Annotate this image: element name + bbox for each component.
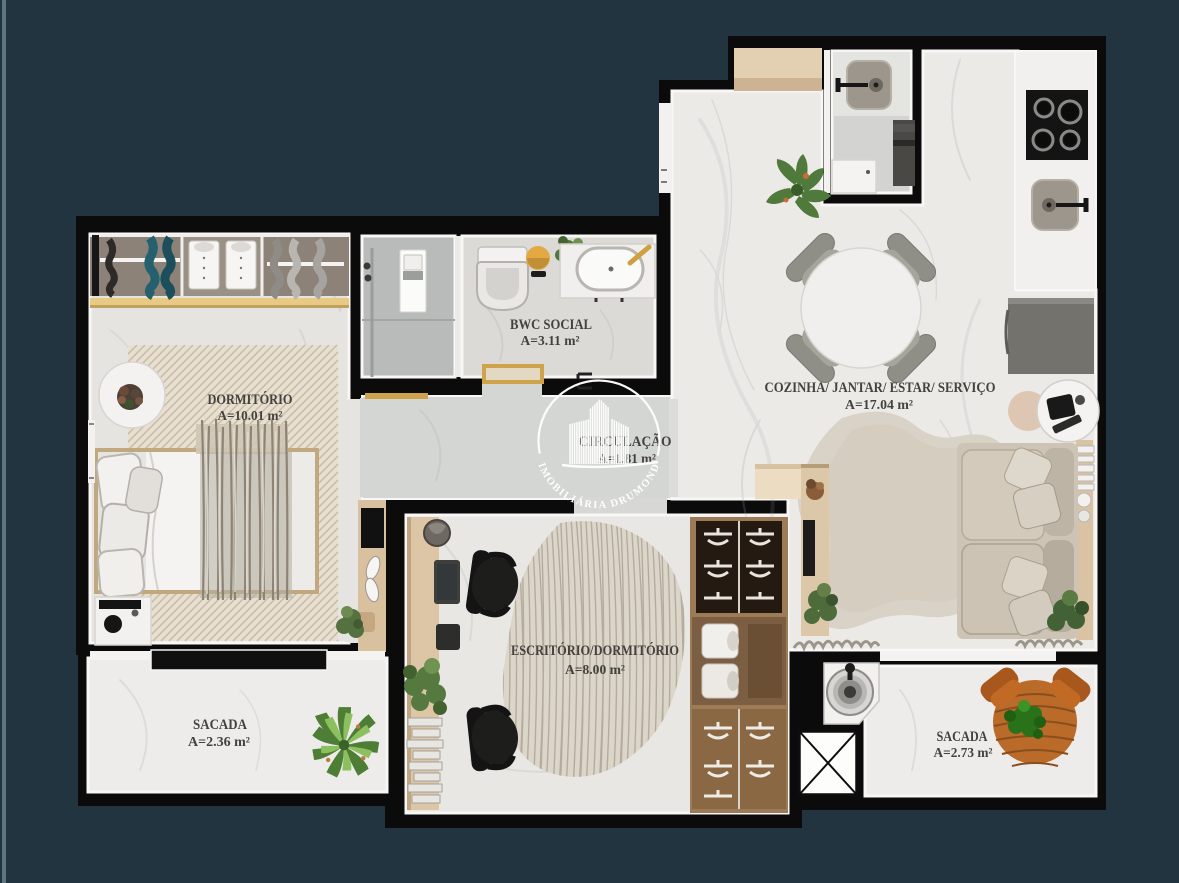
svg-text:A=8.00 m²: A=8.00 m² (565, 662, 625, 677)
svg-text:A=17.04 m²: A=17.04 m² (845, 397, 913, 412)
svg-text:A=2.73 m²: A=2.73 m² (934, 745, 993, 760)
svg-text:SACADA: SACADA (193, 717, 247, 733)
svg-text:ESCRITÓRIO/DORMITÓRIO: ESCRITÓRIO/DORMITÓRIO (511, 642, 679, 659)
svg-text:A=3.11 m²: A=3.11 m² (521, 333, 580, 348)
svg-text:A=2.36 m²: A=2.36 m² (188, 734, 250, 749)
svg-text:A=10.01 m²: A=10.01 m² (218, 408, 283, 423)
svg-text:COZINHA/ JANTAR/ ESTAR/ SERVIÇ: COZINHA/ JANTAR/ ESTAR/ SERVIÇO (765, 380, 996, 396)
svg-text:DORMITÓRIO: DORMITÓRIO (208, 391, 293, 408)
svg-text:SACADA: SACADA (937, 729, 988, 745)
svg-text:BWC SOCIAL: BWC SOCIAL (510, 317, 592, 333)
